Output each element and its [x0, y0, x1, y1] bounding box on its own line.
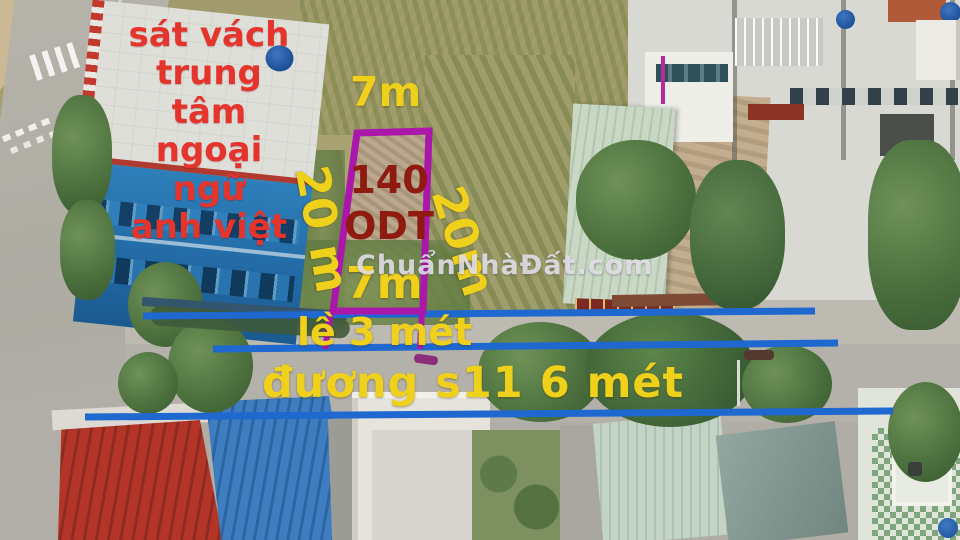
plot-width-top-label: 7m	[350, 68, 421, 116]
note-line-2: trung tâm	[116, 54, 302, 131]
watermark: ChuẩnNhàĐất.com	[356, 250, 653, 281]
plot-zoning-code: ODT	[342, 204, 436, 250]
street-label: đương s11 6 mét	[262, 358, 684, 408]
note-line-4: anh việt	[116, 208, 302, 246]
road-line-bottom	[85, 411, 893, 417]
note-line-3: ngoại ngữ	[116, 131, 302, 208]
note-adjacent-landmark: sát vách trung tâm ngoại ngữ anh việt	[116, 16, 302, 246]
plot-area-zoning-label: 140 ODT	[342, 158, 436, 249]
note-line-1: sát vách	[116, 16, 302, 54]
plot-lot-number: 140	[342, 158, 436, 204]
aerial-photo: sát vách trung tâm ngoại ngữ anh việt 7m…	[0, 0, 960, 540]
road-line-top	[143, 311, 815, 316]
sidewalk-label: lề 3 mét	[297, 310, 472, 354]
